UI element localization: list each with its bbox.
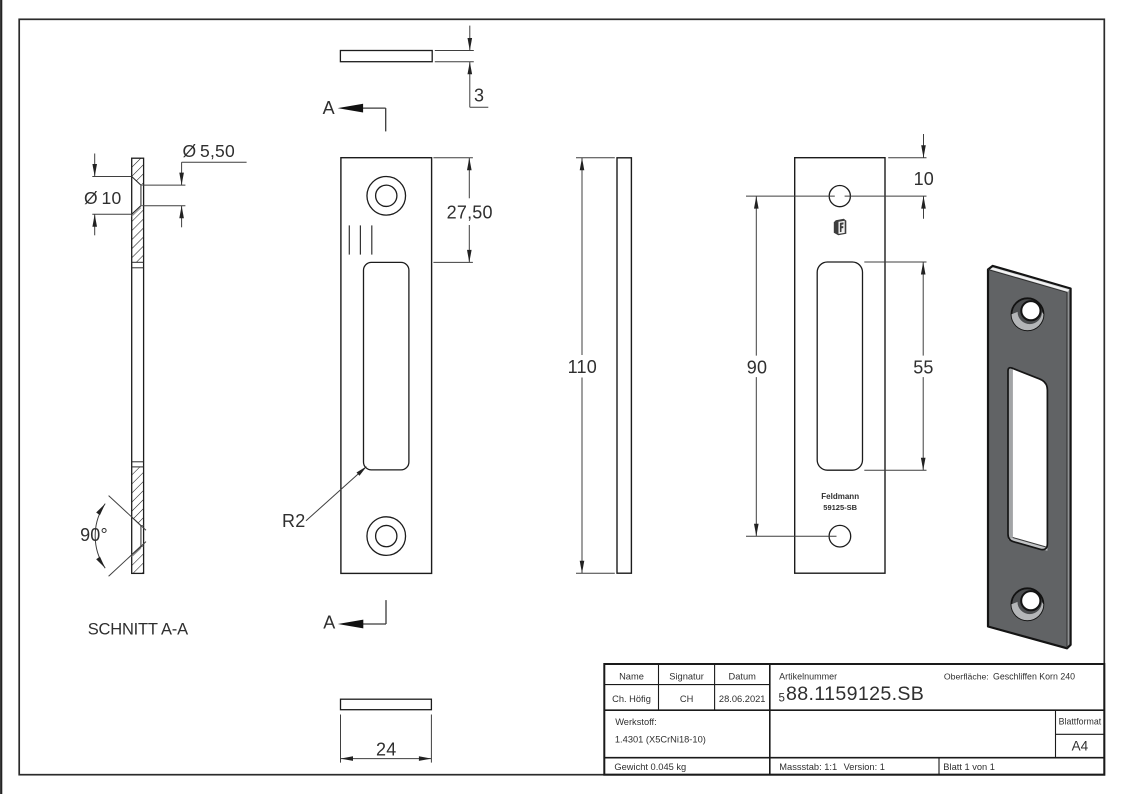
svg-text:Blattformat: Blattformat: [1059, 717, 1102, 727]
svg-text:A4: A4: [1072, 739, 1089, 754]
svg-text:R2: R2: [282, 511, 305, 531]
svg-text:A: A: [323, 98, 335, 118]
svg-text:SCHNITT A-A: SCHNITT A-A: [88, 620, 188, 638]
svg-text:Artikelnummer: Artikelnummer: [779, 672, 837, 682]
svg-text:55: 55: [913, 358, 933, 378]
svg-text:24: 24: [376, 739, 396, 759]
svg-text:Blatt 1 von 1: Blatt 1 von 1: [943, 762, 995, 772]
svg-text:Gewicht 0.045 kg: Gewicht 0.045 kg: [614, 762, 686, 772]
svg-text:A: A: [323, 613, 335, 633]
svg-text:27,50: 27,50: [447, 203, 493, 223]
svg-text:Geschliffen Korn 240: Geschliffen Korn 240: [993, 672, 1075, 682]
svg-text:10: 10: [914, 169, 934, 189]
svg-text:59125-SB: 59125-SB: [823, 503, 857, 512]
svg-text:90°: 90°: [80, 525, 108, 545]
svg-text:5: 5: [779, 693, 785, 705]
svg-text:Datum: Datum: [729, 671, 757, 681]
svg-text:Massstab: 1:1: Massstab: 1:1: [779, 762, 837, 772]
svg-text:Oberfläche:: Oberfläche:: [944, 672, 989, 682]
svg-text:Signatur: Signatur: [669, 671, 704, 681]
svg-text:CH: CH: [680, 694, 693, 704]
svg-text:28.06.2021: 28.06.2021: [719, 694, 766, 704]
svg-text:Version: 1: Version: 1: [844, 762, 885, 772]
svg-text:88.1159125.SB: 88.1159125.SB: [786, 683, 924, 705]
svg-text:110: 110: [568, 357, 597, 377]
svg-text:1.4301 (X5CrNi18-10): 1.4301 (X5CrNi18-10): [615, 734, 706, 744]
svg-text:Ø 10: Ø 10: [84, 188, 121, 208]
svg-text:Name: Name: [619, 671, 644, 681]
svg-text:Feldmann: Feldmann: [821, 492, 859, 501]
svg-text:Ch. Höfig: Ch. Höfig: [612, 694, 651, 704]
svg-text:Ø 5,50: Ø 5,50: [183, 141, 235, 161]
svg-text:Werkstoff:: Werkstoff:: [615, 717, 657, 727]
svg-text:3: 3: [474, 86, 484, 106]
svg-text:90: 90: [747, 358, 767, 378]
